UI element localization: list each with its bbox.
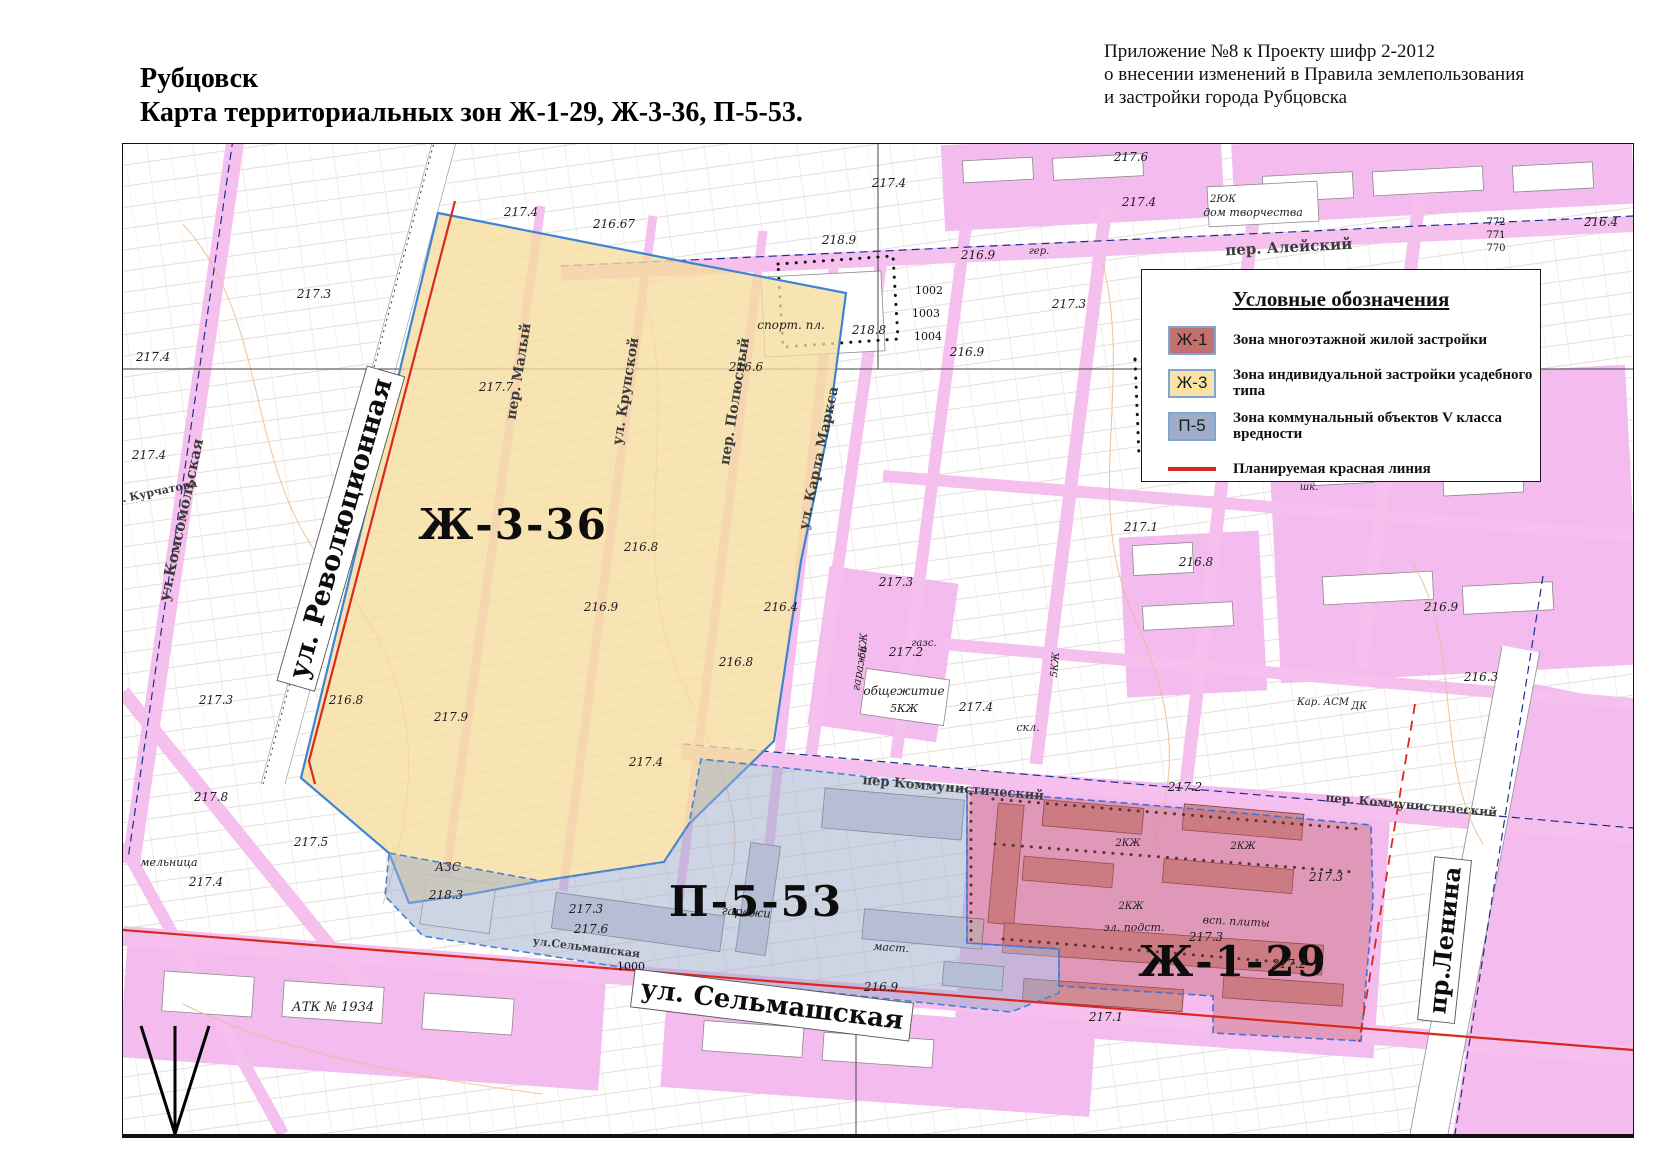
project-annotation: Приложение №8 к Проекту шифр 2-2012 о вн… (1104, 40, 1524, 109)
map-label-elev: 216.8 (623, 540, 659, 554)
map-label-elev: 217.9 (433, 710, 469, 724)
map-label-elev: 217.5 (293, 835, 328, 849)
map-label-bld: 2КЖ (1229, 841, 1256, 852)
map-label-bld: 5КЖ (890, 702, 919, 715)
map-label-elev: 217.3 (878, 575, 914, 589)
map-label-bld: АТК № 1934 (291, 1000, 374, 1015)
map-label-bld: 2КЖ (1117, 901, 1144, 912)
map-label-elev: 217.4 (131, 448, 166, 462)
map-label-elev: 216.6 (728, 360, 764, 374)
map-label-num: 1003 (912, 307, 940, 320)
map-label-num: 1000 (617, 960, 645, 973)
map-label-elev: 217.3 (198, 693, 234, 707)
map-label-elev: 217.3 (1188, 930, 1224, 944)
map-label-elev: 217.4 (871, 176, 906, 190)
map-label-elev: 217.2 (1271, 957, 1306, 971)
map-label-bld: мельница (140, 856, 197, 869)
annotation-line-3: и застройки города Рубцовска (1104, 86, 1524, 109)
map-label-elev: 216.3 (1463, 670, 1499, 684)
map-label-elev: 217.3 (296, 287, 332, 301)
map-label-elev: 217.4 (628, 755, 663, 769)
map-label-elev: 217.4 (958, 700, 993, 714)
page-title: Рубцовск Карта территориальных зон Ж-1-2… (140, 62, 803, 130)
legend-row-zh3: Ж-3 Зона индивидуальной застройки усадеб… (1168, 368, 1540, 398)
map-label-elev: 217.1 (1088, 1010, 1123, 1024)
map-label-bld: ДК (1350, 701, 1367, 712)
legend-red-line-sample (1168, 467, 1216, 471)
map-label-elev: 217.4 (503, 205, 538, 219)
map-label-elev: 216.8 (328, 693, 364, 707)
map-label-elev: 217.1 (1123, 520, 1158, 534)
annotation-line-2: о внесении изменений в Правила землеполь… (1104, 63, 1524, 86)
legend-row-red-line: Планируемая красная линия (1168, 454, 1540, 484)
map-label-num: 772 (1486, 217, 1505, 228)
map-label-bld: Кар. АСМ (1296, 697, 1350, 708)
legend-row-zh1: Ж-1 Зона многоэтажной жилой застройки (1168, 325, 1540, 355)
map-label-bld: спорт. пл. (757, 318, 825, 332)
map-label-num: 1004 (914, 330, 942, 343)
legend-label-zh3: Зона индивидуальной застройки усадебного… (1233, 367, 1540, 399)
map-label-elev: 218.8 (851, 323, 887, 337)
map-label-elev: 217.3 (1308, 870, 1344, 884)
map-label-elev: 218.3 (428, 888, 464, 902)
legend-swatch-zh1: Ж-1 (1168, 326, 1216, 355)
map-label-bld: АЗС (434, 860, 461, 874)
map-label-elev: 217.2 (1167, 780, 1202, 794)
map-label-elev: 217.3 (1051, 297, 1087, 311)
map-label-bld: гер. (1029, 246, 1050, 257)
map-label-elev: 218.9 (821, 233, 857, 247)
map-label-zone: Ж-3-36 (418, 500, 608, 549)
map-label-elev: 216.9 (863, 980, 899, 994)
legend-swatch-p5: П-5 (1168, 412, 1216, 441)
map-label-elev: 216.9 (949, 345, 985, 359)
map-label-elev: 216.9 (960, 248, 996, 262)
map-label-num: 770 (1486, 243, 1505, 254)
annotation-line-1: Приложение №8 к Проекту шифр 2-2012 (1104, 40, 1524, 63)
legend-label-p5: Зона коммунальный объектов V класса вред… (1233, 410, 1540, 442)
map-label-elev: 216.8 (1178, 555, 1214, 569)
map-label-bld: маст. (873, 940, 910, 955)
map-label-elev: 216.9 (1423, 600, 1459, 614)
map-label-elev: 217.4 (135, 350, 170, 364)
map-label-bld: общежитие (863, 684, 944, 698)
map-label-bld: 2КЖ (1114, 838, 1141, 849)
title-city: Рубцовск (140, 62, 803, 96)
map-label-elev: 217.6 (573, 922, 609, 936)
legend-label-zh1: Зона многоэтажной жилой застройки (1233, 332, 1487, 348)
zoning-map: Ж-3-36П-5-53Ж-1-29ул. Революционнаяул. С… (122, 143, 1634, 1138)
map-label-elev: 217.6 (1113, 150, 1149, 164)
map-label-elev: 217.4 (188, 875, 223, 889)
map-label-bld: дом творчества (1203, 206, 1303, 219)
map-label-bld: 2ЮК (1209, 194, 1236, 205)
legend-row-p5: П-5 Зона коммунальный объектов V класса … (1168, 411, 1540, 441)
legend-swatch-zh3: Ж-3 (1168, 369, 1216, 398)
legend-label-red-line: Планируемая красная линия (1233, 461, 1431, 477)
map-label-elev: 216.67 (592, 217, 635, 231)
map-label-bld: 5КЖ (1049, 651, 1062, 678)
map-label-bld: эл. подст. (1104, 921, 1165, 934)
legend-title: Условные обозначения (1142, 287, 1540, 312)
map-label-elev: 217.2 (888, 645, 923, 659)
map-label-num: 1002 (915, 284, 943, 297)
map-label-elev: 217.3 (568, 902, 604, 916)
map-label-elev: 217.7 (478, 380, 514, 394)
map-label-elev: 216.9 (583, 600, 619, 614)
map-label-elev: 216.8 (718, 655, 754, 669)
map-label-bld: 5КЖ (857, 632, 870, 659)
map-label-bld: скл. (1016, 721, 1039, 734)
map-label-elev: 216.4 (1583, 215, 1618, 229)
map-label-elev: 217.4 (1121, 195, 1156, 209)
map-label-elev: 216.4 (763, 600, 798, 614)
map-label-elev: 217.8 (193, 790, 229, 804)
title-map-name: Карта территориальных зон Ж-1-29, Ж-3-36… (140, 96, 803, 130)
map-label-num: 771 (1486, 230, 1505, 241)
legend: Условные обозначения Ж-1 Зона многоэтажн… (1141, 269, 1541, 482)
